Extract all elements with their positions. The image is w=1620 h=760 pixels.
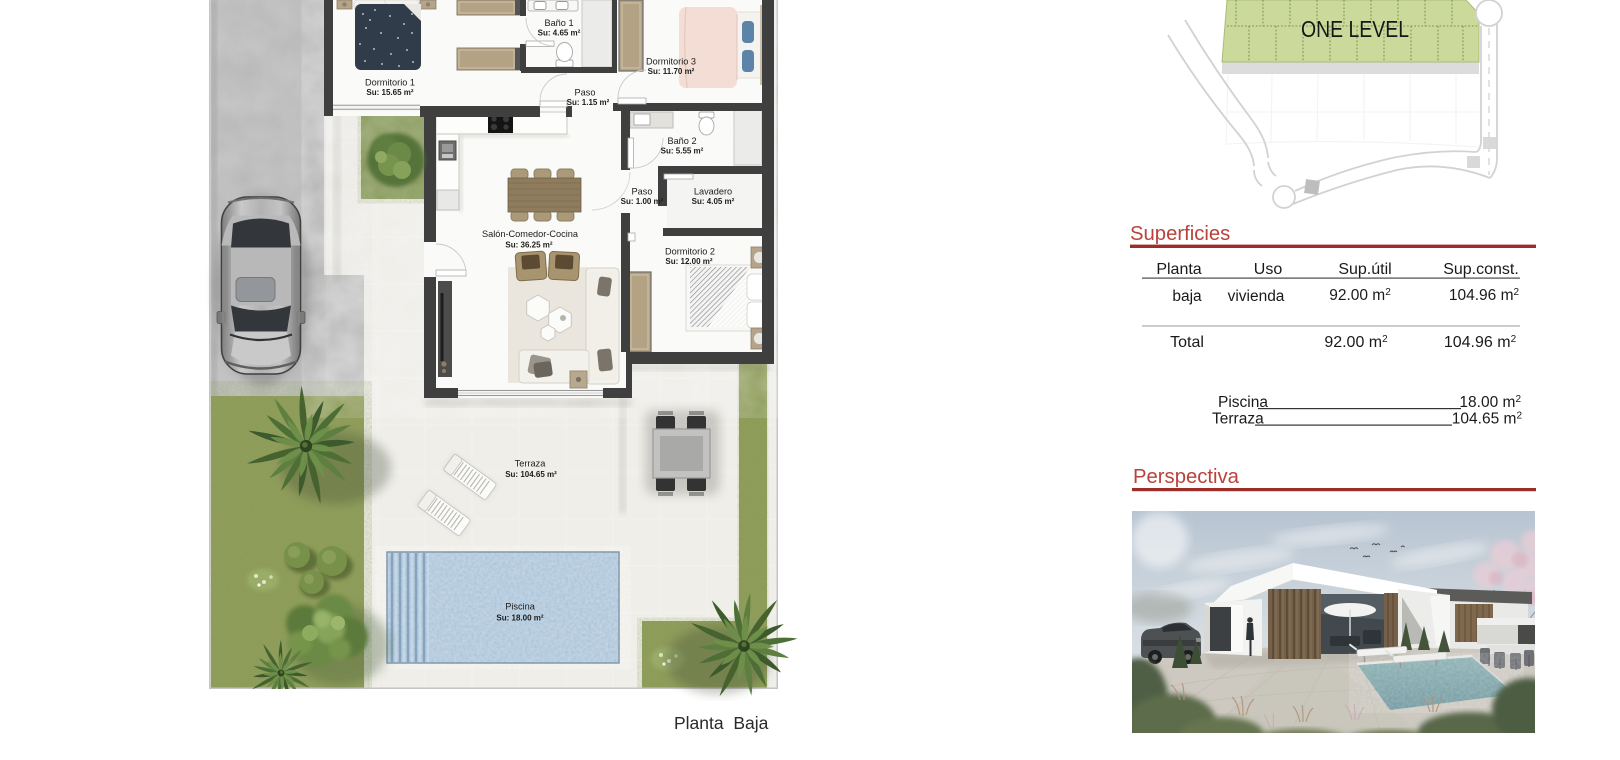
svg-text:Baño 2: Baño 2: [667, 136, 696, 146]
svg-text:Su: 15.65 m²: Su: 15.65 m²: [366, 88, 413, 97]
svg-text:Sup.útil: Sup.útil: [1338, 261, 1391, 278]
svg-text:vivienda: vivienda: [1228, 288, 1285, 305]
svg-text:Su: 104.65 m²: Su: 104.65 m²: [505, 470, 557, 479]
svg-text:Su: 5.55 m²: Su: 5.55 m²: [661, 147, 704, 156]
svg-text:Su: 12.00 m²: Su: 12.00 m²: [665, 257, 712, 266]
svg-text:baja: baja: [1172, 288, 1202, 305]
svg-text:104.96 m2: 104.96 m2: [1444, 334, 1517, 351]
svg-text:Terraza: Terraza: [515, 459, 547, 469]
svg-text:Planta: Planta: [1156, 261, 1201, 278]
svg-text:Su: 18.00 m²: Su: 18.00 m²: [496, 614, 543, 623]
svg-text:Lavadero: Lavadero: [694, 187, 732, 197]
svg-text:Dormitorio 3: Dormitorio 3: [646, 57, 696, 67]
svg-text:92.00 m2: 92.00 m2: [1329, 287, 1391, 304]
svg-text:Su: 11.70 m²: Su: 11.70 m²: [648, 67, 695, 76]
svg-text:104.96 m2: 104.96 m2: [1449, 287, 1520, 304]
svg-text:Paso: Paso: [575, 88, 596, 98]
svg-text:Paso: Paso: [632, 187, 653, 197]
svg-text:Superficies: Superficies: [1130, 223, 1230, 245]
svg-text:18.00 m2: 18.00 m2: [1459, 394, 1521, 411]
svg-text:104.65 m2: 104.65 m2: [1452, 411, 1523, 428]
svg-text:Dormitorio 1: Dormitorio 1: [365, 78, 415, 88]
svg-text:Su: 4.65 m²: Su: 4.65 m²: [538, 29, 581, 38]
svg-text:Su: 1.15 m²: Su: 1.15 m²: [567, 98, 610, 107]
svg-text:Su: 1.00 m²: Su: 1.00 m²: [621, 197, 664, 206]
svg-text:Total: Total: [1170, 334, 1204, 351]
svg-text:Baño 1: Baño 1: [544, 18, 573, 28]
svg-text:Su: 4.05 m²: Su: 4.05 m²: [692, 197, 735, 206]
svg-text:Uso: Uso: [1254, 261, 1283, 278]
svg-text:Perspectiva: Perspectiva: [1133, 466, 1240, 488]
svg-text:Piscina: Piscina: [505, 602, 536, 612]
svg-text:ONE LEVEL: ONE LEVEL: [1301, 16, 1409, 42]
svg-text:Dormitorio 2: Dormitorio 2: [665, 247, 715, 257]
svg-text:Planta Baja: Planta Baja: [674, 713, 769, 733]
svg-text:Su: 36.25 m²: Su: 36.25 m²: [505, 241, 552, 250]
svg-text:92.00 m2: 92.00 m2: [1324, 334, 1388, 351]
svg-text:Salón-Comedor-Cocina: Salón-Comedor-Cocina: [482, 229, 579, 239]
svg-text:Sup.const.: Sup.const.: [1443, 261, 1519, 278]
